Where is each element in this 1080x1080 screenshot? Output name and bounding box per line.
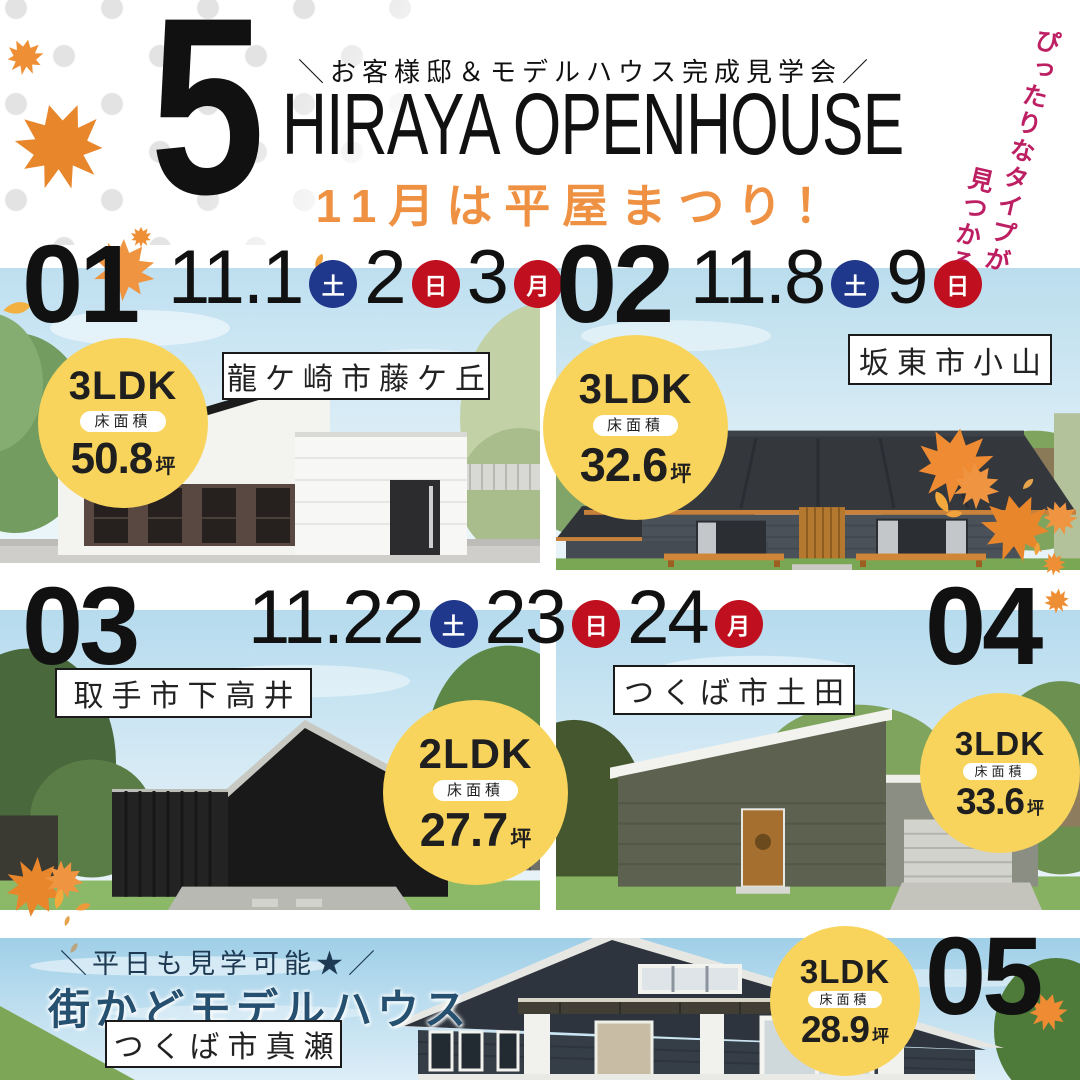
layout-label: 2LDK bbox=[419, 733, 533, 775]
layout-label: 3LDK bbox=[800, 955, 890, 988]
layout-label: 3LDK bbox=[579, 368, 693, 410]
poster-canvas: 5 ＼お客様邸＆モデルハウス完成見学会／ HIRAYA OPENHOUSE 11… bbox=[0, 0, 1080, 1080]
date-text: 11.1 bbox=[168, 240, 302, 316]
date-text: 24 bbox=[627, 580, 708, 656]
saturday-badge: 土 bbox=[831, 260, 879, 308]
floor-area-label: 床面積 bbox=[808, 991, 881, 1008]
layout-label: 3LDK bbox=[955, 727, 1045, 760]
date-text: 11.8 bbox=[690, 240, 824, 316]
date-text: 3 bbox=[467, 240, 507, 316]
saturday-badge: 土 bbox=[430, 600, 478, 648]
listing-05-number: 05 bbox=[925, 922, 1039, 1032]
listing-03-number: 03 bbox=[22, 572, 136, 682]
floor-area-value: 50.8坪 bbox=[71, 437, 176, 481]
property-count-number: 5 bbox=[150, 6, 260, 208]
date-text: 11.22 bbox=[248, 580, 423, 656]
layout-label: 3LDK bbox=[69, 366, 177, 406]
listing-04-area-badge: 3LDK 床面積 33.6坪 bbox=[920, 693, 1080, 853]
floor-area-value: 27.7坪 bbox=[420, 806, 531, 853]
listing-05-area-badge: 3LDK 床面積 28.9坪 bbox=[770, 926, 920, 1076]
floor-area-label: 床面積 bbox=[433, 780, 518, 801]
listing-01-number: 01 bbox=[22, 230, 136, 340]
sunday-badge: 日 bbox=[934, 260, 982, 308]
listing-01-dates: 11.1 土 2 日 3 月 bbox=[168, 240, 562, 316]
floor-area-label: 床面積 bbox=[593, 415, 678, 436]
floor-area-label: 床面積 bbox=[963, 763, 1036, 780]
poster-title: HIRAYA OPENHOUSE bbox=[282, 80, 903, 167]
listing-05-location: つくば市真瀬 bbox=[105, 1020, 342, 1068]
date-text: 23 bbox=[485, 580, 566, 656]
listing-01-location: 龍ケ崎市藤ケ丘 bbox=[222, 352, 490, 400]
listing-04-location: つくば市土田 bbox=[613, 665, 855, 715]
listing-03-location: 取手市下高井 bbox=[55, 668, 312, 718]
monday-holiday-badge: 月 bbox=[514, 260, 562, 308]
listing-03-area-badge: 2LDK 床面積 27.7坪 bbox=[383, 700, 568, 885]
listing-01-area-badge: 3LDK 床面積 50.8坪 bbox=[38, 338, 208, 508]
date-text: 9 bbox=[886, 240, 926, 316]
listing-04-number: 04 bbox=[925, 572, 1039, 682]
sunday-badge: 日 bbox=[572, 600, 620, 648]
sunday-badge: 日 bbox=[412, 260, 460, 308]
monday-holiday-badge: 月 bbox=[715, 600, 763, 648]
floor-area-value: 28.9坪 bbox=[801, 1011, 889, 1048]
listing-02-number: 02 bbox=[556, 230, 670, 340]
listing-02-location: 坂東市小山 bbox=[848, 334, 1052, 385]
leaf-icon bbox=[939, 499, 969, 529]
date-text: 2 bbox=[364, 240, 404, 316]
maple-leaf-icon bbox=[3, 35, 47, 79]
floor-area-value: 33.6坪 bbox=[956, 783, 1044, 820]
saturday-badge: 土 bbox=[309, 260, 357, 308]
listing-02-area-badge: 3LDK 床面積 32.6坪 bbox=[543, 335, 728, 520]
floor-area-label: 床面積 bbox=[80, 411, 165, 432]
floor-area-value: 32.6坪 bbox=[580, 441, 691, 488]
listing-03-dates: 11.22 土 23 日 24 月 bbox=[248, 580, 763, 656]
listing-02-dates: 11.8 土 9 日 bbox=[690, 240, 982, 316]
